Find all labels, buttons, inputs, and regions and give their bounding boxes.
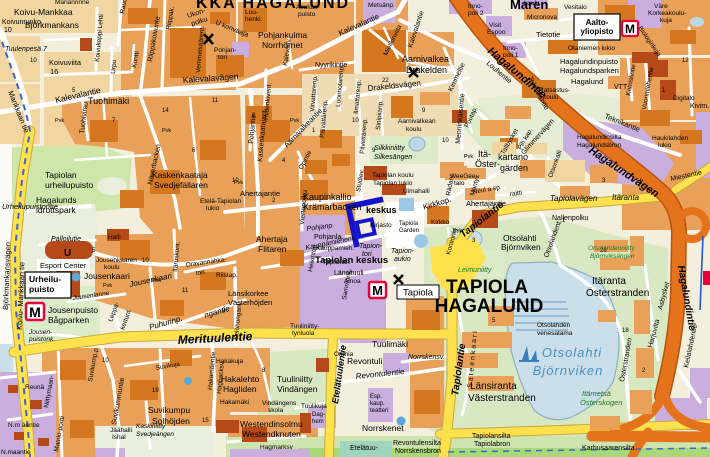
svg-text:Kaupinkallio: Kaupinkallio (303, 192, 352, 202)
svg-text:Koivu-Mankkaa: Koivu-Mankkaa (14, 7, 73, 17)
svg-text:Västerhöjden: Västerhöjden (228, 298, 272, 307)
svg-text:talo: talo (454, 180, 465, 187)
svg-text:Hagliden: Hagliden (223, 384, 257, 394)
svg-text:Kaskiniitty: Kaskiniitty (136, 423, 166, 430)
svg-text:Tietotie: Tietotie (536, 30, 560, 39)
svg-text:Tapion-: Tapion- (391, 248, 415, 255)
svg-text:Visit: Visit (489, 22, 501, 29)
svg-text:Palloilutie: Palloilutie (51, 236, 81, 243)
svg-text:14: 14 (162, 108, 169, 114)
svg-text:Drakelden: Drakelden (406, 65, 447, 75)
svg-text:Jousen-: Jousen- (28, 329, 53, 336)
svg-text:M: M (372, 283, 383, 298)
svg-text:Björnviken: Björnviken (501, 242, 541, 252)
svg-text:lukio: lukio (206, 205, 220, 212)
svg-text:Esp.: Esp. (370, 394, 382, 400)
svg-text:Vesitalo: Vesitalo (564, 4, 587, 11)
svg-text:N.m äentie: N.m äentie (8, 422, 40, 429)
svg-text:tori: tori (218, 54, 227, 61)
svg-text:Pvk: Pvk (290, 118, 299, 124)
svg-text:Espoo: Espoo (487, 29, 506, 36)
svg-text:Tapiolansilta: Tapiolansilta (472, 433, 511, 440)
svg-text:Tapiolabron: Tapiolabron (474, 441, 510, 448)
svg-text:Pohjankulma: Pohjankulma (258, 30, 307, 40)
svg-text:kuja: kuja (660, 17, 672, 24)
svg-text:Flitaren: Flitaren (258, 244, 287, 254)
svg-text:hem: hem (312, 419, 324, 425)
svg-text:Uimahalli: Uimahalli (403, 188, 430, 195)
svg-text:Pvk: Pvk (234, 180, 243, 186)
svg-text:19: 19 (152, 388, 159, 394)
svg-text:koulu: koulu (406, 126, 422, 133)
svg-text:Länsikorkee: Länsikorkee (228, 289, 268, 298)
svg-text:Kirkko: Kirkko (431, 219, 449, 226)
svg-text:15: 15 (202, 418, 209, 424)
svg-text:Hagalund: Hagalund (571, 77, 603, 86)
svg-text:Inno-: Inno- (468, 3, 483, 10)
svg-text:Tapiolan: Tapiolan (45, 170, 77, 180)
svg-text:10: 10 (30, 58, 37, 64)
svg-text:Otsolahdenniitty: Otsolahdenniitty (588, 245, 635, 252)
svg-text:Norrskensv.: Norrskensv. (408, 354, 445, 361)
svg-text:Pvk: Pvk (162, 128, 171, 134)
svg-text:tori: tori (362, 251, 372, 258)
svg-text:Svedjefällaren: Svedjefällaren (154, 180, 208, 190)
svg-text:Björnviken: Björnviken (533, 363, 604, 378)
svg-text:Aarnivalkea: Aarnivalkea (402, 54, 449, 64)
svg-text:Norrskenet: Norrskenet (362, 423, 404, 433)
svg-text:Karhusaarensilta: Karhusaarensilta (582, 445, 635, 452)
svg-text:Hakalehto: Hakalehto (221, 374, 260, 384)
svg-text:Tuulimäki: Tuulimäki (372, 339, 408, 349)
svg-text:M: M (625, 22, 635, 36)
svg-text:Urheilu-: Urheilu- (29, 274, 61, 284)
svg-text:Digitalo: Digitalo (673, 95, 695, 102)
svg-text:urheilupuisto: urheilupuisto (45, 180, 93, 190)
svg-text:Itä-: Itä- (478, 149, 491, 159)
svg-text:M: M (29, 304, 41, 320)
svg-text:Silkkiniitty: Silkkiniitty (374, 145, 405, 152)
svg-text:Otsolahti: Otsolahti (542, 345, 602, 360)
svg-text:Tuohimäki: Tuohimäki (88, 96, 129, 106)
svg-text:Kirjasto: Kirjasto (370, 222, 392, 229)
svg-text:Otaniemen lukio: Otaniemen lukio (568, 45, 615, 52)
svg-text:Revontuli: Revontuli (347, 356, 383, 366)
svg-text:Westendinsolmu: Westendinsolmu (240, 419, 303, 429)
svg-text:Suvikumpu: Suvikumpu (148, 405, 190, 415)
svg-text:Svedjeängen: Svedjeängen (136, 431, 174, 438)
svg-text:Västerstranden: Västerstranden (468, 393, 536, 404)
svg-text:skola: skola (268, 407, 284, 414)
svg-text:Aalto-: Aalto- (586, 18, 609, 27)
svg-text:Hagmarksv: Hagmarksv (260, 444, 294, 451)
svg-text:Ishal: Ishal (112, 434, 126, 441)
svg-text:Koivuviita: Koivuviita (49, 58, 82, 67)
svg-text:Vindängens: Vindängens (262, 400, 297, 407)
svg-text:Kivim.: Kivim. (690, 103, 709, 110)
svg-text:18: 18 (622, 328, 629, 334)
svg-text:Tuulenpesä 7: Tuulenpesä 7 (5, 46, 48, 53)
svg-text:Tapiolan keskus: Tapiolan keskus (315, 255, 388, 266)
svg-text:tori: tori (195, 269, 205, 277)
svg-text:Norrskensbron: Norrskensbron (395, 448, 441, 455)
svg-text:Pohjan-: Pohjan- (214, 47, 236, 54)
svg-text:puisto: puisto (298, 11, 316, 18)
svg-text:Pvk: Pvk (55, 118, 64, 124)
svg-text:Itämetsä: Itämetsä (582, 389, 611, 398)
svg-text:Riistap.: Riistap. (216, 272, 238, 279)
svg-text:Tapiola: Tapiola (403, 288, 434, 299)
svg-text:Hakamäki: Hakamäki (220, 399, 249, 406)
svg-text:Itäranta: Itäranta (592, 276, 626, 287)
svg-text:Etelä-Tapiolan: Etelä-Tapiolan (200, 198, 242, 205)
svg-text:Kaskenkaataja: Kaskenkaataja (152, 170, 208, 180)
svg-text:Jousenpuisto: Jousenpuisto (48, 305, 98, 315)
svg-text:10: 10 (142, 258, 149, 264)
svg-text:Silkesängen: Silkesängen (374, 154, 412, 161)
svg-text:Dag-: Dag- (312, 412, 325, 418)
svg-text:Pvk: Pvk (464, 154, 473, 160)
svg-text:Revontulensilta: Revontulensilta (393, 440, 441, 447)
svg-text:Jäähalli: Jäähalli (110, 427, 132, 434)
svg-text:Etelätuu-: Etelätuu- (350, 445, 379, 452)
svg-text:Hagalundinsilta: Hagalundinsilta (577, 134, 622, 141)
svg-text:kartano: kartano (498, 152, 528, 162)
svg-text:10: 10 (102, 358, 109, 364)
svg-text:puistonk.: puistonk. (28, 336, 55, 343)
svg-text:Tapiolan lukio: Tapiolan lukio (373, 180, 413, 187)
svg-text:Tapion-: Tapion- (359, 243, 383, 250)
svg-text:raitti: raitti (509, 190, 522, 198)
svg-text:Ahertajantie: Ahertajantie (240, 189, 280, 198)
svg-text:12: 12 (682, 58, 689, 64)
svg-text:Pvk: Pvk (103, 283, 112, 289)
svg-text:aukio: aukio (394, 256, 411, 263)
svg-text:Väre: Väre (654, 3, 668, 10)
svg-text:Björkmankans: Björkmankans (25, 20, 79, 30)
svg-text:Länsiranta: Länsiranta (470, 381, 517, 392)
svg-text:Norrhörnet: Norrhörnet (262, 40, 303, 50)
svg-text:Haukilahden: Haukilahden (652, 135, 689, 142)
svg-text:koulu: koulu (524, 0, 540, 7)
svg-text:Bågparken: Bågparken (48, 315, 89, 325)
svg-text:HAGALUND: HAGALUND (435, 296, 544, 317)
svg-text:KKA HAGALUND: KKA HAGALUND (196, 0, 350, 12)
svg-text:Jousenkaari: Jousenkaari (84, 271, 130, 281)
svg-text:Tapiolavägen: Tapiolavägen (550, 194, 598, 203)
svg-text:Tuulikuja: Tuulikuja (301, 403, 327, 410)
svg-text:poli 2: poli 2 (468, 10, 484, 17)
svg-text:Jousenkaaren: Jousenkaaren (96, 257, 137, 264)
svg-text:Tapiola: Tapiola (399, 221, 419, 227)
svg-text:Aarnivalkean: Aarnivalkean (398, 118, 436, 125)
svg-text:lukio: lukio (658, 142, 672, 149)
svg-text:16: 16 (50, 67, 58, 76)
svg-text:Öster-: Öster- (475, 159, 500, 169)
svg-text:Hagalundinpuisto: Hagalundinpuisto (560, 57, 618, 66)
svg-text:Österstranden: Österstranden (586, 287, 649, 299)
svg-text:tynluola: tynluola (292, 330, 315, 337)
svg-text:Krämarbacken: Krämarbacken (303, 202, 362, 212)
svg-text:Itäranta: Itäranta (612, 193, 640, 202)
svg-text:yliopisto: yliopisto (581, 27, 614, 36)
svg-text:Metsänp.: Metsänp. (368, 2, 395, 9)
svg-text:10: 10 (442, 138, 449, 144)
svg-text:11: 11 (212, 98, 219, 104)
svg-text:Hagalundsparken: Hagalundsparken (560, 66, 619, 75)
svg-text:Reunä: Reunä (25, 384, 45, 391)
svg-text:Tuuliniitty-: Tuuliniitty- (290, 323, 319, 330)
svg-text:10: 10 (4, 27, 12, 34)
svg-text:venesatama: venesatama (537, 330, 573, 337)
svg-text:teatteri: teatteri (370, 408, 388, 414)
svg-text:Urheilupuistontie: Urheilupuistontie (2, 202, 58, 211)
svg-text:Ahertaja: Ahertaja (256, 234, 288, 244)
svg-text:Micronova: Micronova (527, 14, 557, 21)
svg-text:Halli: Halli (108, 234, 121, 241)
svg-text:Westendknuten: Westendknuten (242, 429, 301, 439)
svg-text:kaup.: kaup. (370, 401, 385, 407)
svg-text:Österskogen: Österskogen (580, 398, 623, 407)
svg-text:11: 11 (182, 288, 189, 294)
svg-text:TAPIOLA: TAPIOLA (446, 277, 528, 298)
svg-text:Marianrinne: Marianrinne (55, 0, 90, 6)
svg-text:Leimuniitty: Leimuniitty (458, 267, 492, 274)
svg-text:Garden: Garden (399, 228, 419, 234)
svg-text:Tuuliniitty: Tuuliniitty (277, 374, 313, 384)
svg-text:Inno-: Inno- (503, 45, 518, 52)
svg-text:Vindängen: Vindängen (277, 384, 318, 394)
svg-text:N.maantie: N.maantie (1, 449, 31, 456)
svg-text:Tapiolan koulu: Tapiolan koulu (372, 172, 414, 179)
svg-text:Björnviksängen: Björnviksängen (590, 253, 635, 260)
svg-text:keskus: keskus (366, 205, 397, 215)
svg-text:Korkeakoulu-: Korkeakoulu- (648, 10, 686, 17)
svg-text:U: U (64, 248, 71, 259)
svg-text:10: 10 (352, 118, 359, 124)
svg-text:gärden: gärden (500, 163, 528, 173)
svg-text:Otsolahden: Otsolahden (537, 322, 571, 329)
svg-text:Esport Center: Esport Center (40, 261, 87, 270)
svg-text:Hagalundsbron: Hagalundsbron (577, 142, 621, 149)
svg-text:henki.: henki. (245, 16, 263, 23)
svg-text:puisto: puisto (29, 284, 55, 294)
svg-text:koulu: koulu (104, 264, 120, 271)
svg-text:Urpu: Urpu (110, 59, 118, 74)
